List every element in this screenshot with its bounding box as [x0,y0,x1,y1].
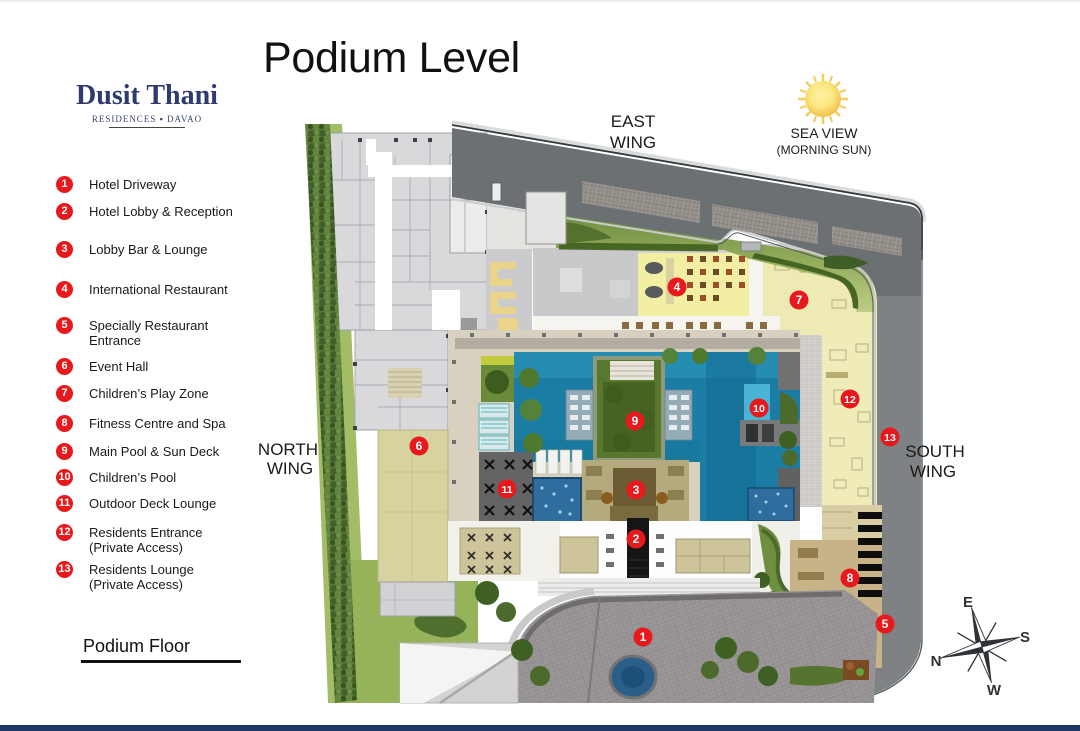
svg-text:NORTH: NORTH [258,440,318,459]
svg-text:5: 5 [882,617,889,631]
svg-text:W: W [987,682,1002,699]
svg-text:(MORNING SUN): (MORNING SUN) [777,143,872,157]
svg-text:3: 3 [633,483,640,497]
svg-text:S: S [1020,629,1030,646]
svg-text:13: 13 [884,432,896,444]
svg-text:WING: WING [910,462,956,481]
svg-text:7: 7 [796,293,803,307]
svg-text:6: 6 [416,439,423,453]
svg-text:12: 12 [844,394,856,406]
svg-text:4: 4 [674,280,681,294]
svg-text:1: 1 [640,630,647,644]
svg-text:WING: WING [267,459,313,478]
svg-text:N: N [931,653,942,670]
svg-text:2: 2 [633,532,640,546]
svg-text:WING: WING [610,133,656,152]
svg-text:SEA VIEW: SEA VIEW [791,125,859,141]
svg-text:11: 11 [501,484,512,496]
svg-text:E: E [963,594,973,611]
svg-text:9: 9 [632,414,639,428]
svg-text:SOUTH: SOUTH [905,442,965,461]
svg-text:10: 10 [753,403,765,415]
svg-text:8: 8 [847,571,854,585]
svg-text:EAST: EAST [611,112,655,131]
